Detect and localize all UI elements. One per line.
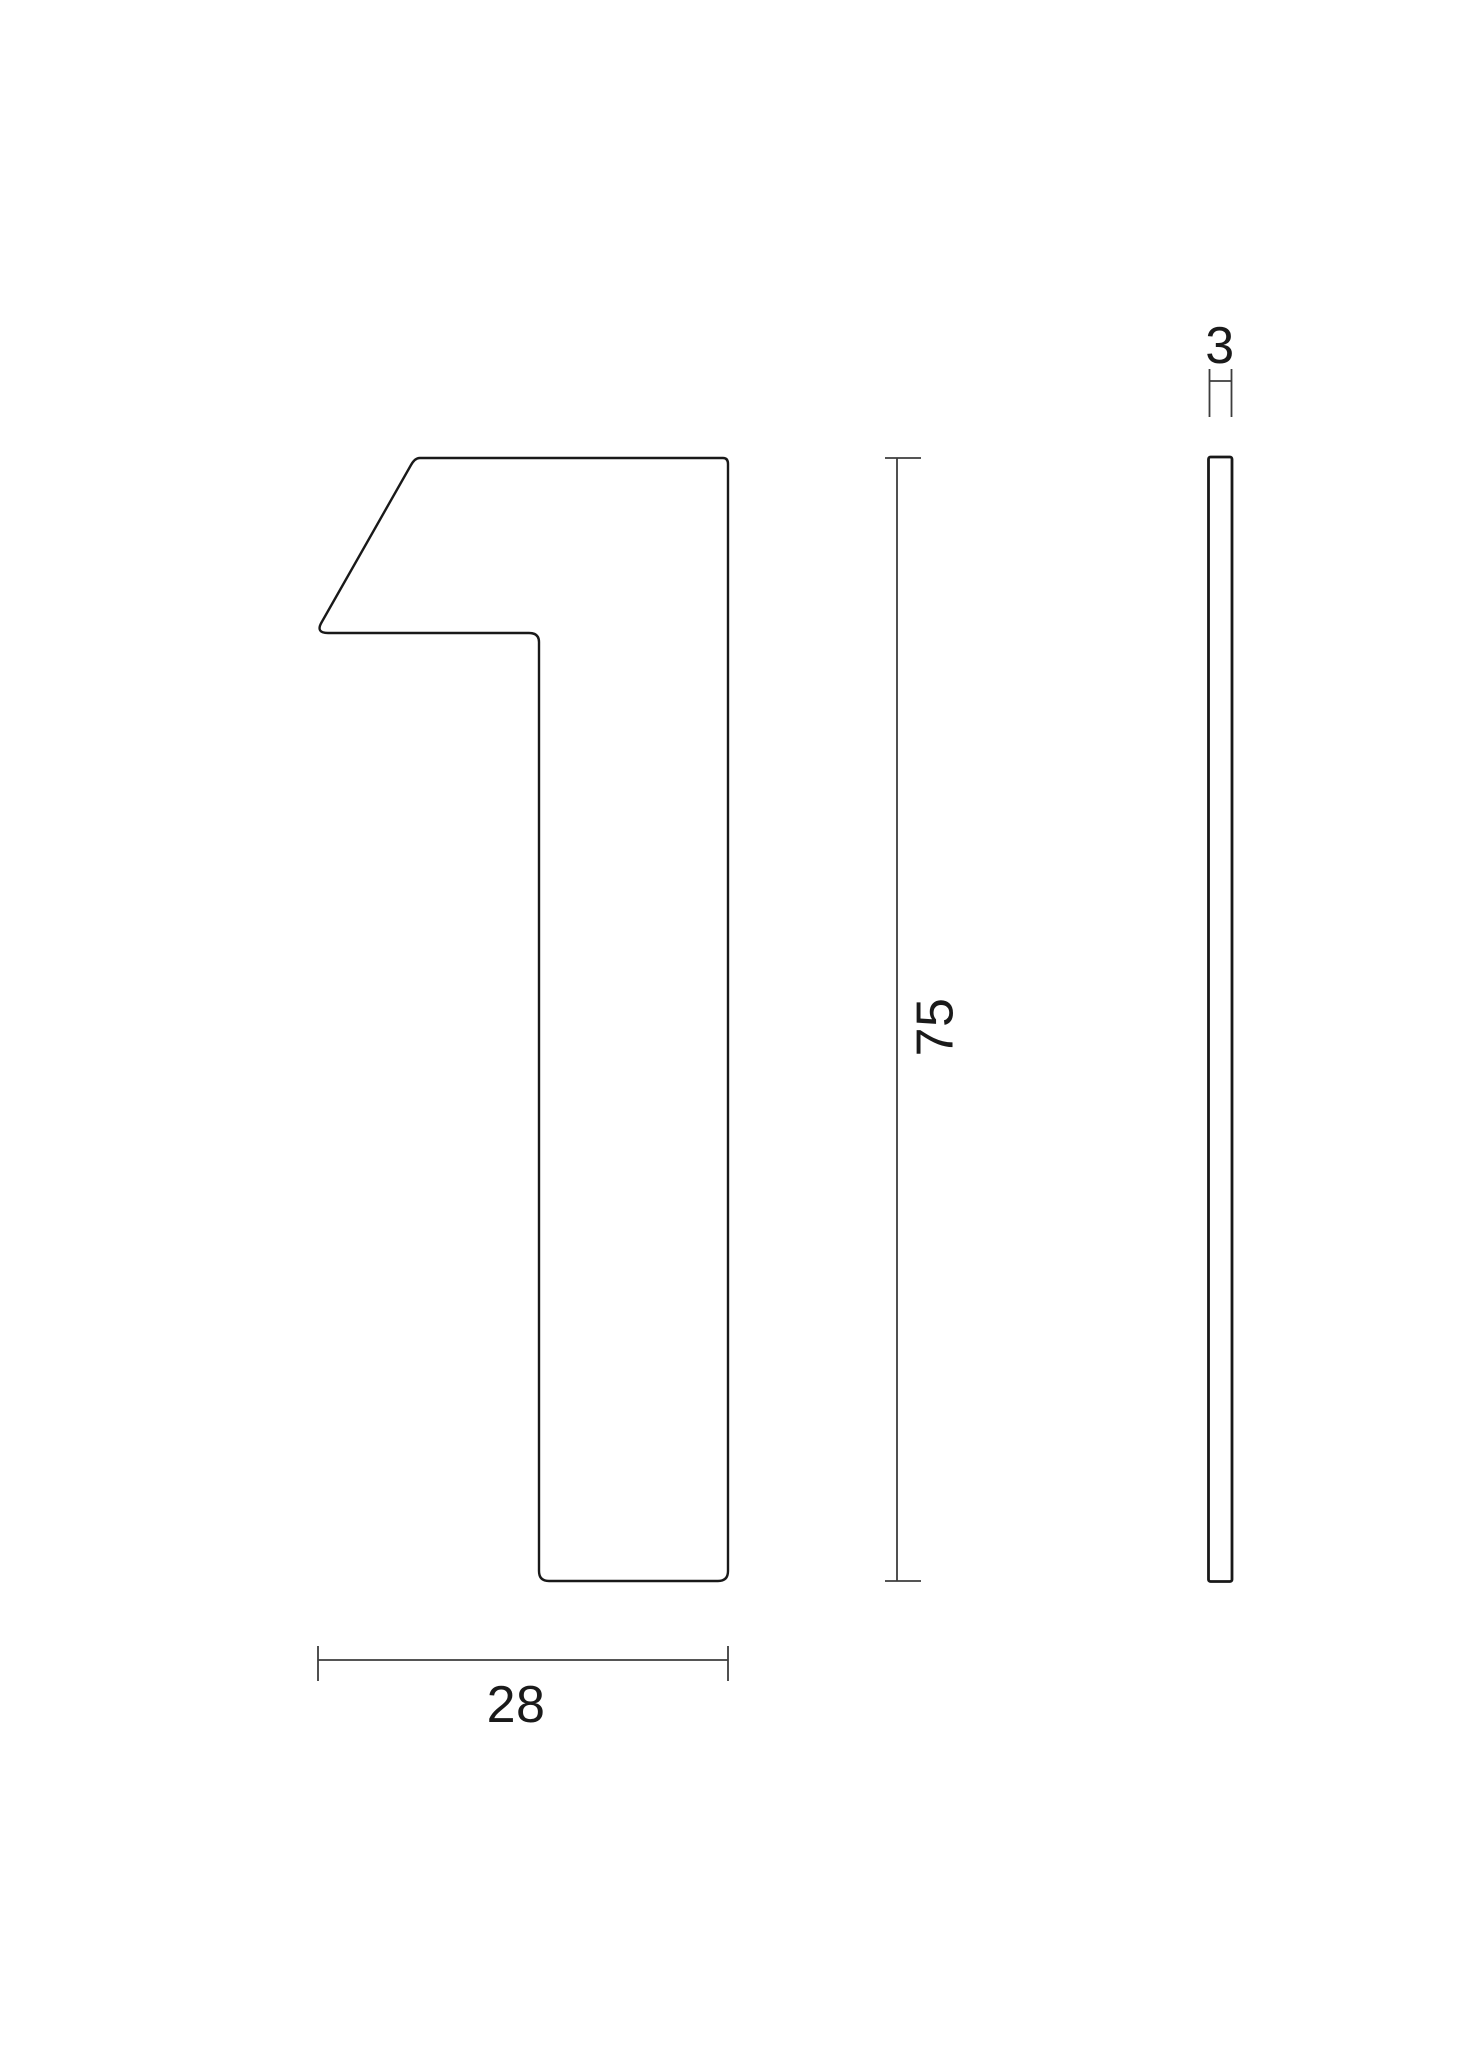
width-dimension: 28	[318, 1646, 728, 1734]
height-dimension: 75	[885, 458, 965, 1581]
thickness-dimension: 3	[1205, 317, 1234, 417]
technical-drawing: 75 28 3	[0, 0, 1483, 2047]
thickness-dimension-label: 3	[1205, 317, 1234, 375]
numeral-1-front-view-outline	[320, 458, 728, 1581]
side-view-plate-outline	[1209, 457, 1233, 1582]
width-dimension-label: 28	[487, 1676, 546, 1734]
drawing-canvas: 75 28 3	[0, 0, 1483, 2047]
height-dimension-label: 75	[907, 998, 965, 1057]
